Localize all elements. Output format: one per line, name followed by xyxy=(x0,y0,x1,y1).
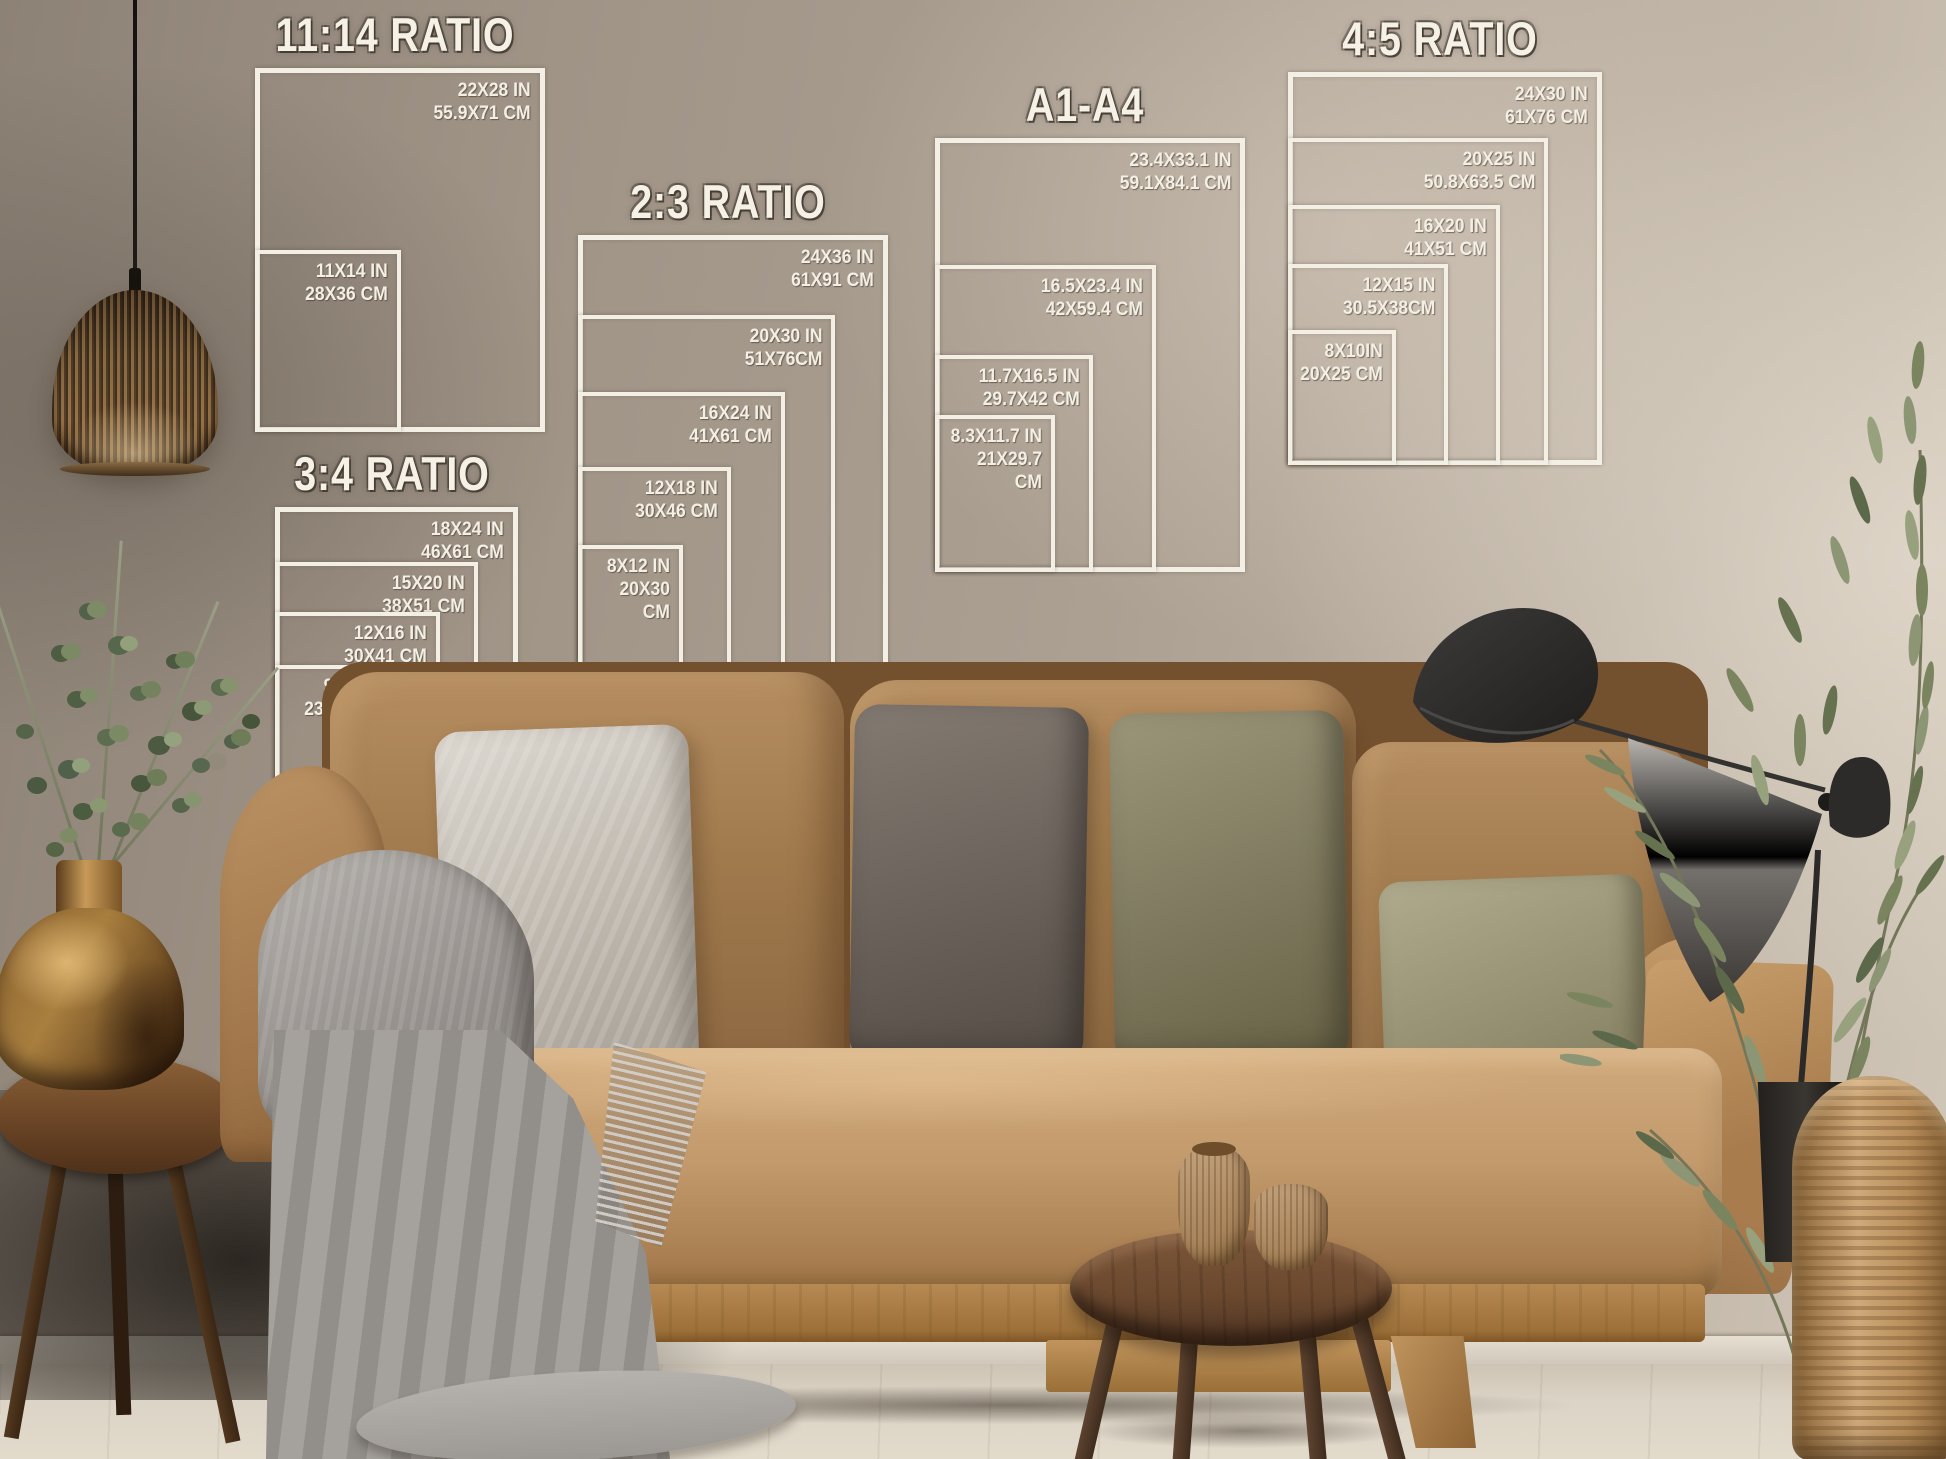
size-inches: 18X24 IN xyxy=(421,519,504,542)
size-centimeters: 41X61 CM xyxy=(689,426,772,449)
size-group-a1-a4: A1-A423.4X33.1 IN59.1X84.1 CM16.5X23.4 I… xyxy=(935,148,1235,572)
size-inches: 11.7X16.5 IN xyxy=(979,366,1080,389)
size-inches: 24X30 IN xyxy=(1505,84,1588,107)
size-group-ratio-4-5: 4:5 RATIO24X30 IN61X76 CM20X25 IN50.8X63… xyxy=(1288,82,1592,465)
size-centimeters: 30X46 CM xyxy=(635,501,718,524)
size-group-ratio-11-14: 11:14 RATIO22X28 IN55.9X71 CM11X14 IN28X… xyxy=(255,78,535,432)
size-group-ratio-2-3: 2:3 RATIO24X36 IN61X91 CM20X30 IN51X76CM… xyxy=(578,245,878,705)
pendant-cord xyxy=(133,0,137,294)
small-vase-short xyxy=(1254,1184,1328,1270)
size-inches: 16X24 IN xyxy=(689,403,772,426)
size-box-label: 20X25 IN50.8X63.5 CM xyxy=(1423,149,1535,195)
size-box-label: 12X18 IN30X46 CM xyxy=(635,478,718,524)
wicker-basket xyxy=(1792,1076,1946,1459)
pendant-lamp-rim xyxy=(60,462,210,476)
size-box-label: 18X24 IN46X61 CM xyxy=(421,519,504,565)
size-centimeters: 28X36 CM xyxy=(305,284,388,307)
size-centimeters: 29.7X42 CM xyxy=(979,389,1080,412)
size-box-label: 11X14 IN28X36 CM xyxy=(305,261,388,307)
size-inches: 11X14 IN xyxy=(305,261,388,284)
size-centimeters: 20X25 CM xyxy=(1300,364,1383,387)
size-box-label: 8.3X11.7 IN21X29.7 CM xyxy=(947,426,1042,494)
size-box-label: 12X15 IN30.5X38CM xyxy=(1343,275,1435,321)
pillow-dark-gray xyxy=(849,704,1089,1066)
size-box: 8.3X11.7 IN21X29.7 CM xyxy=(935,415,1055,572)
size-group-title: 2:3 RATIO xyxy=(630,174,825,229)
size-box-label: 22X28 IN55.9X71 CM xyxy=(434,80,531,126)
size-group-title: 4:5 RATIO xyxy=(1342,11,1537,66)
size-box-label: 24X30 IN61X76 CM xyxy=(1505,84,1588,130)
pillow-sage-green xyxy=(1109,710,1349,1066)
size-inches: 23.4X33.1 IN xyxy=(1119,150,1231,173)
small-vase-tall xyxy=(1178,1146,1250,1266)
size-centimeters: 50.8X63.5 CM xyxy=(1423,172,1535,195)
size-group-title: A1-A4 xyxy=(1026,77,1144,132)
size-centimeters: 30.5X38CM xyxy=(1343,298,1435,321)
size-box-label: 8X12 IN20X30 CM xyxy=(589,556,670,624)
size-inches: 12X16 IN xyxy=(344,623,427,646)
size-centimeters: 61X76 CM xyxy=(1505,107,1588,130)
size-box-label: 8X10IN20X25 CM xyxy=(1300,341,1383,387)
size-centimeters: 61X91 CM xyxy=(791,270,874,293)
size-group-title: 11:14 RATIO xyxy=(276,7,515,62)
size-box: 8X10IN20X25 CM xyxy=(1288,330,1396,465)
eucalyptus-leaves-back xyxy=(46,842,64,857)
size-inches: 24X36 IN xyxy=(791,247,874,270)
size-centimeters: 51X76CM xyxy=(744,349,822,372)
size-inches: 16.5X23.4 IN xyxy=(1041,276,1143,299)
size-inches: 8X12 IN xyxy=(589,556,670,579)
size-box-label: 16.5X23.4 IN42X59.4 CM xyxy=(1041,276,1143,322)
size-inches: 8.3X11.7 IN xyxy=(947,426,1042,449)
size-centimeters: 42X59.4 CM xyxy=(1041,299,1143,322)
size-inches: 16X20 IN xyxy=(1404,216,1487,239)
size-box-label: 16X24 IN41X61 CM xyxy=(689,403,772,449)
living-room-scene: 11:14 RATIO22X28 IN55.9X71 CM11X14 IN28X… xyxy=(0,0,1946,1459)
size-centimeters: 55.9X71 CM xyxy=(434,103,531,126)
size-inches: 20X30 IN xyxy=(744,326,822,349)
size-centimeters: 59.1X84.1 CM xyxy=(1119,173,1231,196)
size-centimeters: 41X51 CM xyxy=(1404,239,1487,262)
size-group-title: 3:4 RATIO xyxy=(294,446,489,501)
size-box-label: 23.4X33.1 IN59.1X84.1 CM xyxy=(1119,150,1231,196)
size-centimeters: 21X29.7 CM xyxy=(947,449,1042,495)
size-box-label: 24X36 IN61X91 CM xyxy=(791,247,874,293)
size-box-label: 16X20 IN41X51 CM xyxy=(1404,216,1487,262)
size-box-label: 20X30 IN51X76CM xyxy=(744,326,822,372)
size-inches: 20X25 IN xyxy=(1423,149,1535,172)
size-inches: 8X10IN xyxy=(1300,341,1383,364)
size-centimeters: 20X30 CM xyxy=(589,579,670,625)
size-box-label: 11.7X16.5 IN29.7X42 CM xyxy=(979,366,1080,412)
eucalyptus-leaves-front xyxy=(60,828,78,843)
size-inches: 12X15 IN xyxy=(1343,275,1435,298)
size-inches: 22X28 IN xyxy=(434,80,531,103)
size-box: 11X14 IN28X36 CM xyxy=(255,250,401,432)
size-inches: 12X18 IN xyxy=(635,478,718,501)
size-inches: 15X20 IN xyxy=(382,573,465,596)
